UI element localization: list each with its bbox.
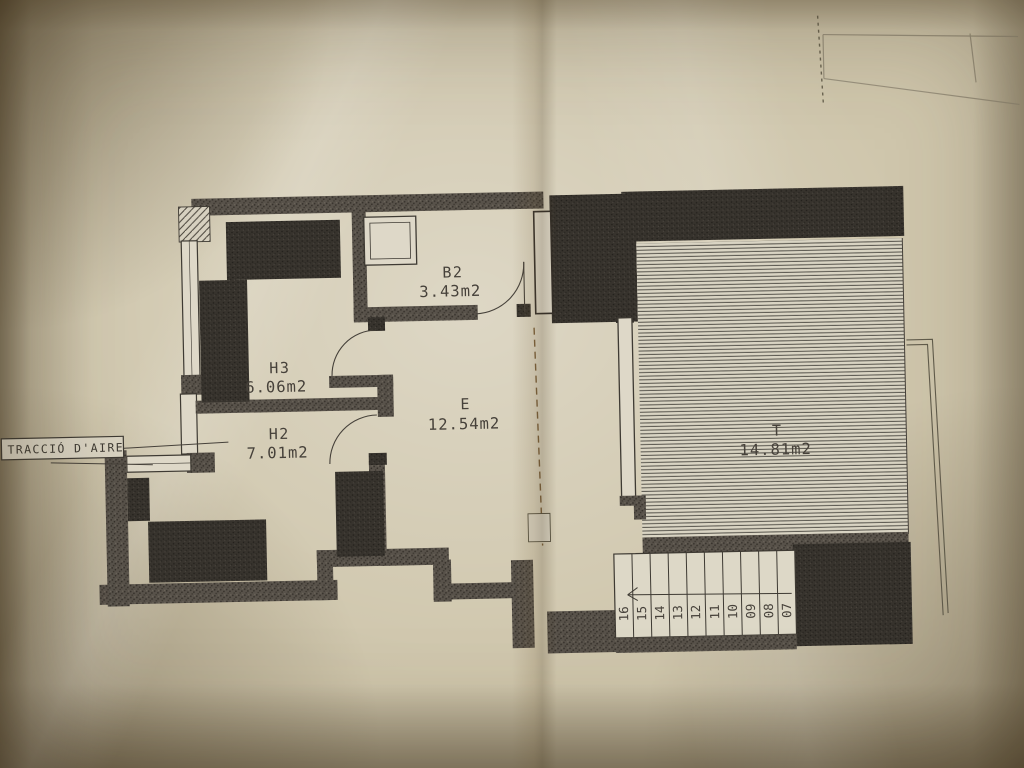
step-number: 15 [634, 606, 649, 621]
terrace-decking-hatch [636, 238, 908, 540]
step-number: 14 [652, 605, 667, 620]
pencil-sketch-fragment [818, 11, 1020, 108]
corner-pillar [178, 206, 210, 242]
h2-bed [148, 519, 267, 582]
terrace-window-wall [618, 318, 636, 500]
step-number: 08 [761, 603, 776, 618]
room-label-e: E [460, 395, 471, 413]
terrace-side-block [793, 542, 913, 646]
fold-dashed-line [534, 328, 543, 546]
floor-plan-drawing: 16 15 14 13 12 11 10 09 08 07 H3 6.06m2 … [0, 0, 1024, 768]
b2-shower [364, 216, 417, 265]
staircase: 16 15 14 13 12 11 10 09 08 07 [614, 550, 797, 653]
step-number: 09 [743, 604, 758, 619]
room-area-h3: 6.06m2 [245, 377, 307, 396]
step-number: 16 [616, 606, 631, 621]
air-label-text: TRACCIÓ D'AIRE [7, 439, 124, 456]
step-number: 11 [707, 604, 722, 619]
room-label-t: T [772, 422, 783, 440]
h3-furniture-top [226, 220, 341, 280]
h2-furniture-small [127, 478, 150, 521]
h2-wardrobe [335, 471, 385, 557]
room-area-b2: 3.43m2 [419, 282, 481, 301]
step-number: 13 [670, 605, 685, 620]
room-label-h3: H3 [269, 359, 290, 377]
railing-line-inner [907, 344, 944, 616]
door-arc-h3 [331, 330, 377, 376]
floor-plan-photo: 16 15 14 13 12 11 10 09 08 07 H3 6.06m2 … [0, 0, 1024, 768]
room-label-b2: B2 [442, 263, 463, 281]
room-label-h2: H2 [269, 425, 290, 443]
room-area-e: 12.54m2 [428, 414, 501, 434]
pencil-dashed-edge [818, 16, 824, 106]
step-number: 10 [725, 604, 740, 619]
h3-furniture-side [199, 280, 250, 403]
step-number: 07 [779, 603, 794, 618]
room-area-t: 14.81m2 [739, 440, 812, 460]
step-number: 12 [688, 605, 703, 620]
room-area-h2: 7.01m2 [246, 443, 308, 462]
fold-pier [528, 513, 551, 541]
shaft-window [534, 211, 553, 313]
railing-line-outer [906, 339, 948, 614]
